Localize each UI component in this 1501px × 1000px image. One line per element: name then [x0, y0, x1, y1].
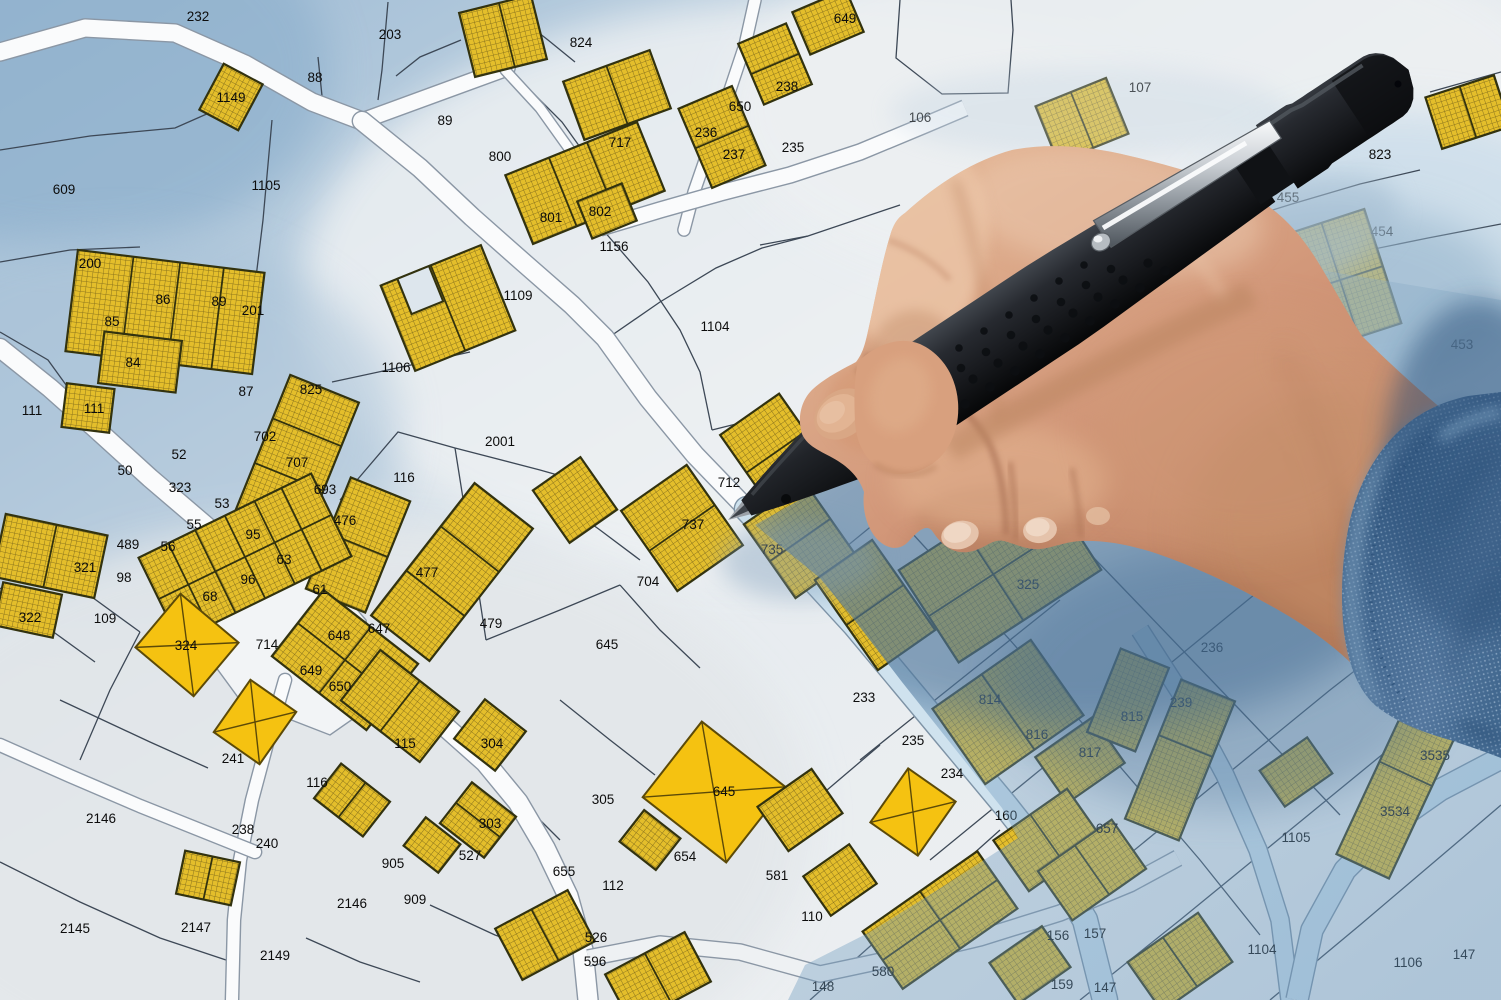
svg-text:655: 655: [553, 864, 576, 879]
svg-text:234: 234: [941, 766, 964, 781]
svg-text:1106: 1106: [381, 360, 410, 375]
svg-text:115: 115: [394, 736, 416, 751]
svg-text:116: 116: [306, 775, 328, 790]
svg-text:477: 477: [416, 565, 439, 580]
svg-text:645: 645: [596, 637, 619, 652]
svg-text:909: 909: [404, 892, 427, 907]
svg-text:89: 89: [211, 294, 226, 309]
svg-text:693: 693: [314, 482, 337, 497]
svg-text:581: 581: [766, 868, 789, 883]
svg-text:112: 112: [602, 878, 624, 893]
svg-text:650: 650: [329, 679, 352, 694]
svg-text:50: 50: [117, 463, 132, 478]
svg-text:650: 650: [729, 99, 752, 114]
svg-text:109: 109: [94, 611, 117, 626]
svg-text:1156: 1156: [599, 239, 628, 254]
svg-text:905: 905: [382, 856, 405, 871]
svg-text:96: 96: [240, 572, 255, 587]
svg-text:56: 56: [160, 539, 175, 554]
svg-text:737: 737: [682, 517, 705, 532]
svg-text:654: 654: [674, 849, 697, 864]
svg-text:1149: 1149: [216, 90, 245, 105]
svg-text:2149: 2149: [260, 948, 290, 963]
svg-text:232: 232: [187, 9, 210, 24]
svg-text:823: 823: [1369, 147, 1392, 162]
svg-text:707: 707: [286, 455, 309, 470]
svg-text:98: 98: [116, 570, 131, 585]
svg-text:2145: 2145: [60, 921, 90, 936]
svg-text:324: 324: [175, 638, 198, 653]
svg-text:1104: 1104: [700, 319, 730, 334]
svg-text:649: 649: [300, 663, 323, 678]
svg-text:201: 201: [242, 303, 265, 318]
svg-text:238: 238: [776, 79, 799, 94]
svg-text:645: 645: [713, 784, 736, 799]
svg-text:95: 95: [245, 527, 260, 542]
svg-text:235: 235: [902, 733, 925, 748]
svg-text:2146: 2146: [337, 896, 367, 911]
svg-text:1105: 1105: [251, 178, 280, 193]
svg-text:85: 85: [104, 314, 119, 329]
svg-text:88: 88: [307, 70, 322, 85]
svg-text:648: 648: [328, 628, 351, 643]
svg-text:111: 111: [22, 403, 43, 418]
svg-text:2001: 2001: [485, 434, 515, 449]
svg-text:800: 800: [489, 149, 512, 164]
svg-text:322: 322: [19, 610, 42, 625]
svg-text:479: 479: [480, 616, 503, 631]
svg-text:84: 84: [125, 355, 141, 370]
svg-text:303: 303: [479, 816, 502, 831]
svg-text:240: 240: [256, 836, 279, 851]
svg-text:86: 86: [155, 292, 170, 307]
svg-text:237: 237: [723, 147, 746, 162]
svg-text:238: 238: [232, 822, 255, 837]
svg-text:89: 89: [437, 113, 452, 128]
svg-text:61: 61: [312, 582, 327, 597]
svg-text:702: 702: [254, 429, 277, 444]
svg-text:1109: 1109: [503, 288, 532, 303]
svg-text:717: 717: [609, 135, 632, 150]
svg-text:704: 704: [637, 574, 660, 589]
svg-text:2147: 2147: [181, 920, 211, 935]
svg-text:649: 649: [834, 11, 857, 26]
svg-text:241: 241: [222, 751, 245, 766]
svg-text:304: 304: [481, 736, 504, 751]
svg-text:236: 236: [695, 125, 718, 140]
svg-text:2146: 2146: [86, 811, 116, 826]
svg-text:609: 609: [53, 182, 76, 197]
svg-text:235: 235: [782, 140, 805, 155]
svg-text:87: 87: [238, 384, 253, 399]
svg-text:110: 110: [801, 909, 823, 924]
svg-text:200: 200: [79, 256, 102, 271]
svg-text:305: 305: [592, 792, 615, 807]
svg-text:596: 596: [584, 954, 607, 969]
svg-text:712: 712: [718, 475, 741, 490]
svg-text:55: 55: [186, 517, 201, 532]
svg-text:526: 526: [585, 930, 608, 945]
svg-text:527: 527: [459, 848, 482, 863]
svg-text:801: 801: [540, 210, 563, 225]
svg-text:203: 203: [379, 27, 402, 42]
svg-text:489: 489: [117, 537, 140, 552]
svg-text:52: 52: [171, 447, 186, 462]
svg-text:321: 321: [74, 560, 97, 575]
svg-text:53: 53: [214, 496, 229, 511]
svg-text:68: 68: [202, 589, 217, 604]
svg-text:647: 647: [368, 621, 391, 636]
svg-text:714: 714: [256, 637, 279, 652]
svg-text:233: 233: [853, 690, 876, 705]
svg-text:825: 825: [300, 382, 323, 397]
svg-text:802: 802: [589, 204, 612, 219]
svg-text:116: 116: [393, 470, 415, 485]
svg-text:63: 63: [276, 552, 291, 567]
svg-text:323: 323: [169, 480, 192, 495]
svg-text:824: 824: [570, 35, 593, 50]
svg-text:111: 111: [84, 401, 105, 416]
svg-text:476: 476: [334, 513, 357, 528]
